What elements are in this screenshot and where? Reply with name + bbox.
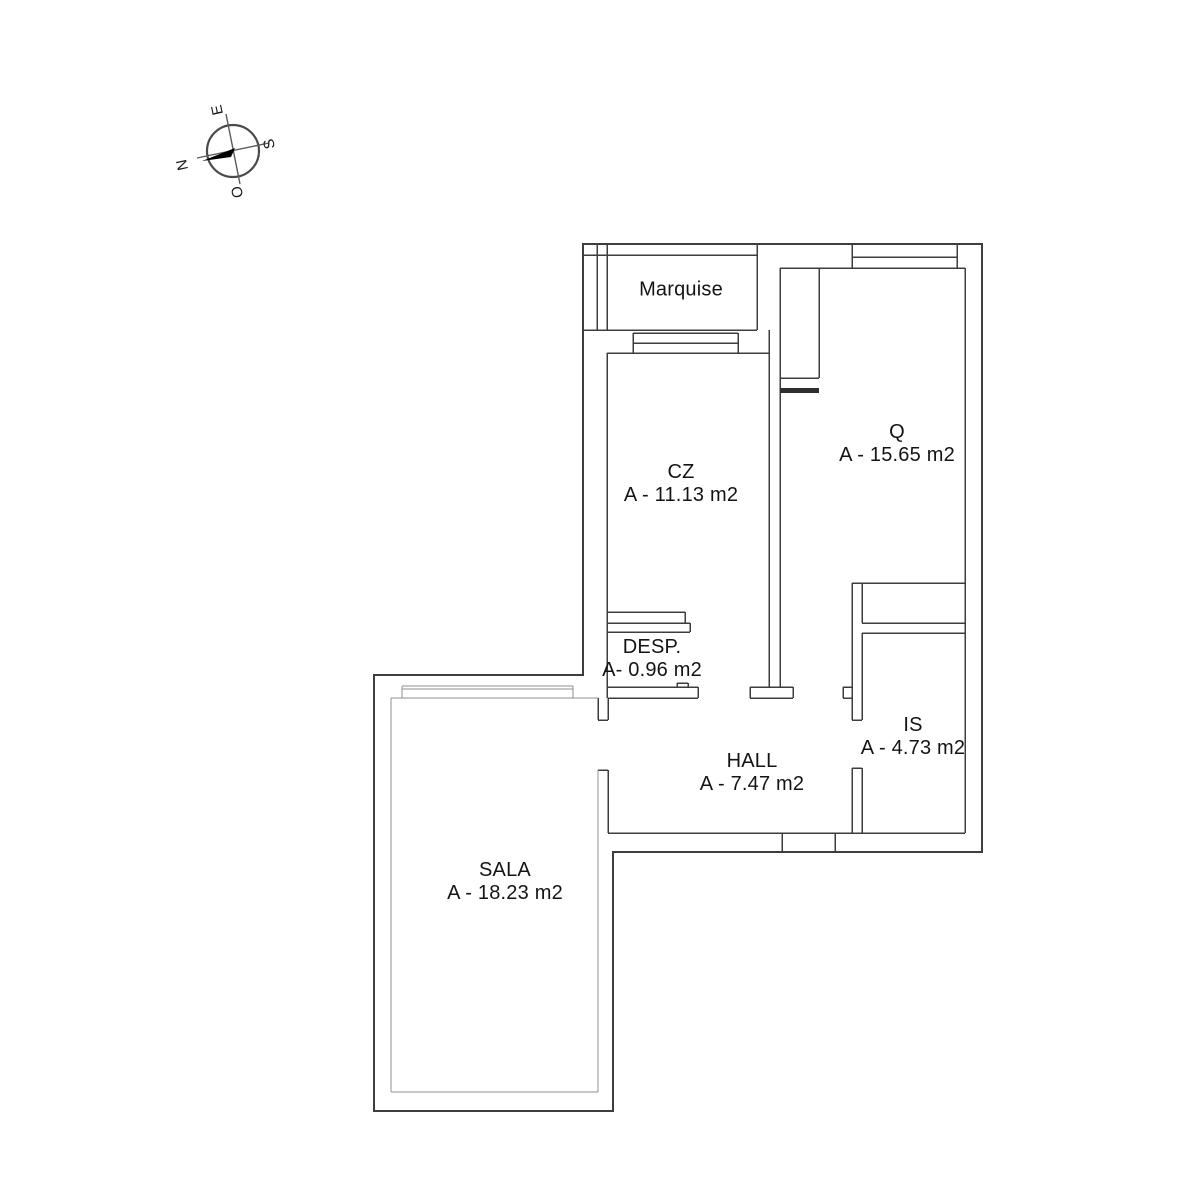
room-label-hall: HALL A - 7.47 m2 (700, 750, 804, 796)
compass-label-e: E (208, 103, 227, 116)
floor-plan-drawing: E S N O (0, 0, 1200, 1200)
room-area: A- 0.96 m2 (602, 659, 702, 682)
compass-label-s: S (260, 137, 279, 150)
room-area: A - 4.73 m2 (861, 737, 965, 760)
room-label-cz: CZ A - 11.13 m2 (624, 461, 738, 507)
room-label-is: IS A - 4.73 m2 (861, 714, 965, 760)
room-label-marquise: Marquise (639, 279, 723, 302)
room-name: HALL (700, 750, 804, 773)
room-label-desp: DESP. A- 0.96 m2 (602, 636, 702, 682)
room-name: Q (839, 421, 955, 444)
compass-rose: E S N O (173, 103, 279, 199)
floor-plan-page: E S N O Marquise CZ A - 11.13 m2 Q A - 1… (0, 0, 1200, 1200)
room-name: Marquise (639, 279, 723, 302)
room-name: IS (861, 714, 965, 737)
room-area: A - 7.47 m2 (700, 773, 804, 796)
room-area: A - 18.23 m2 (447, 882, 563, 905)
room-name: SALA (447, 859, 563, 882)
room-name: CZ (624, 461, 738, 484)
room-area: A - 11.13 m2 (624, 484, 738, 507)
room-area: A - 15.65 m2 (839, 444, 955, 467)
room-label-q: Q A - 15.65 m2 (839, 421, 955, 467)
wardrobe-shelf (780, 388, 819, 393)
compass-label-o: O (228, 184, 247, 199)
compass-label-n: N (173, 158, 192, 172)
room-name: DESP. (602, 636, 702, 659)
room-label-sala: SALA A - 18.23 m2 (447, 859, 563, 905)
